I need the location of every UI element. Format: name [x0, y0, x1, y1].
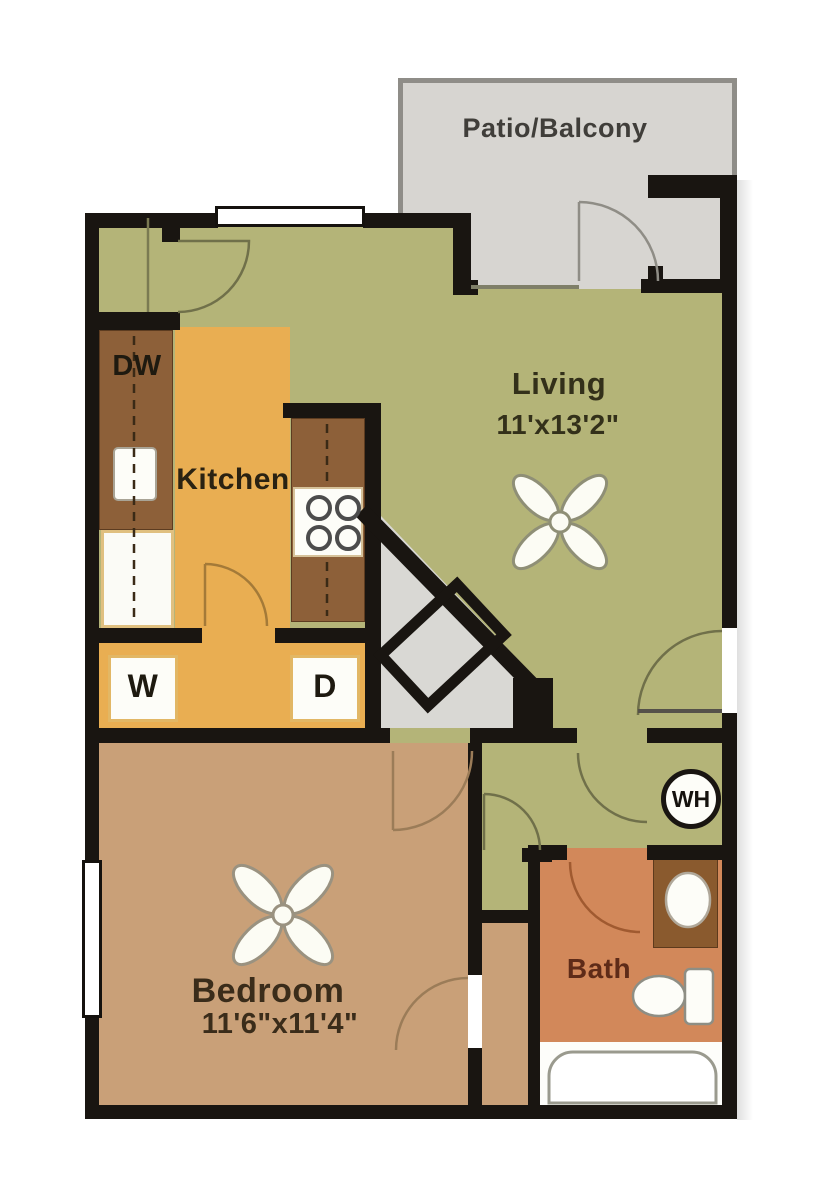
patio-label: Patio/Balcony [462, 113, 647, 144]
door-arc-hall [578, 753, 647, 822]
bath-sink-icon [666, 873, 710, 927]
dishwasher-label: DW [112, 350, 161, 383]
door-arc-entry-front [638, 631, 722, 715]
plan-lineart [0, 0, 825, 1200]
bedroom-dimensions: 11'6"x11'4" [202, 1008, 359, 1041]
washer-label: W [128, 668, 159, 705]
toilet-icon [633, 976, 685, 1016]
door-arc-laundry [205, 564, 267, 626]
door-arc-hall-closet [484, 794, 540, 850]
living-dimensions: 11'x13'2" [497, 409, 620, 441]
kitchen-label: Kitchen [176, 463, 290, 497]
bedroom-label: Bedroom [192, 972, 345, 1011]
stove-burners-icon [308, 497, 359, 549]
water-heater-icon: WH [661, 769, 721, 829]
ceiling-fan-icon [226, 858, 341, 973]
ceiling-fan-icon [506, 468, 613, 575]
door-arc-bath [570, 862, 640, 932]
door-arc-bedroom-closet [396, 978, 468, 1050]
living-label: Living [512, 366, 606, 402]
dryer-label: D [313, 668, 337, 705]
water-heater-label: WH [672, 786, 710, 813]
toilet-tank-icon [685, 969, 713, 1024]
door-arc-patio [579, 202, 658, 281]
floor-plan: WH Patio/Balcony Living 11'x13'2" Kitche… [0, 0, 825, 1200]
door-arc-front-closet [178, 241, 249, 312]
door-arc-bedroom [393, 751, 472, 830]
bath-label: Bath [567, 953, 631, 985]
bathtub-icon [549, 1052, 716, 1103]
